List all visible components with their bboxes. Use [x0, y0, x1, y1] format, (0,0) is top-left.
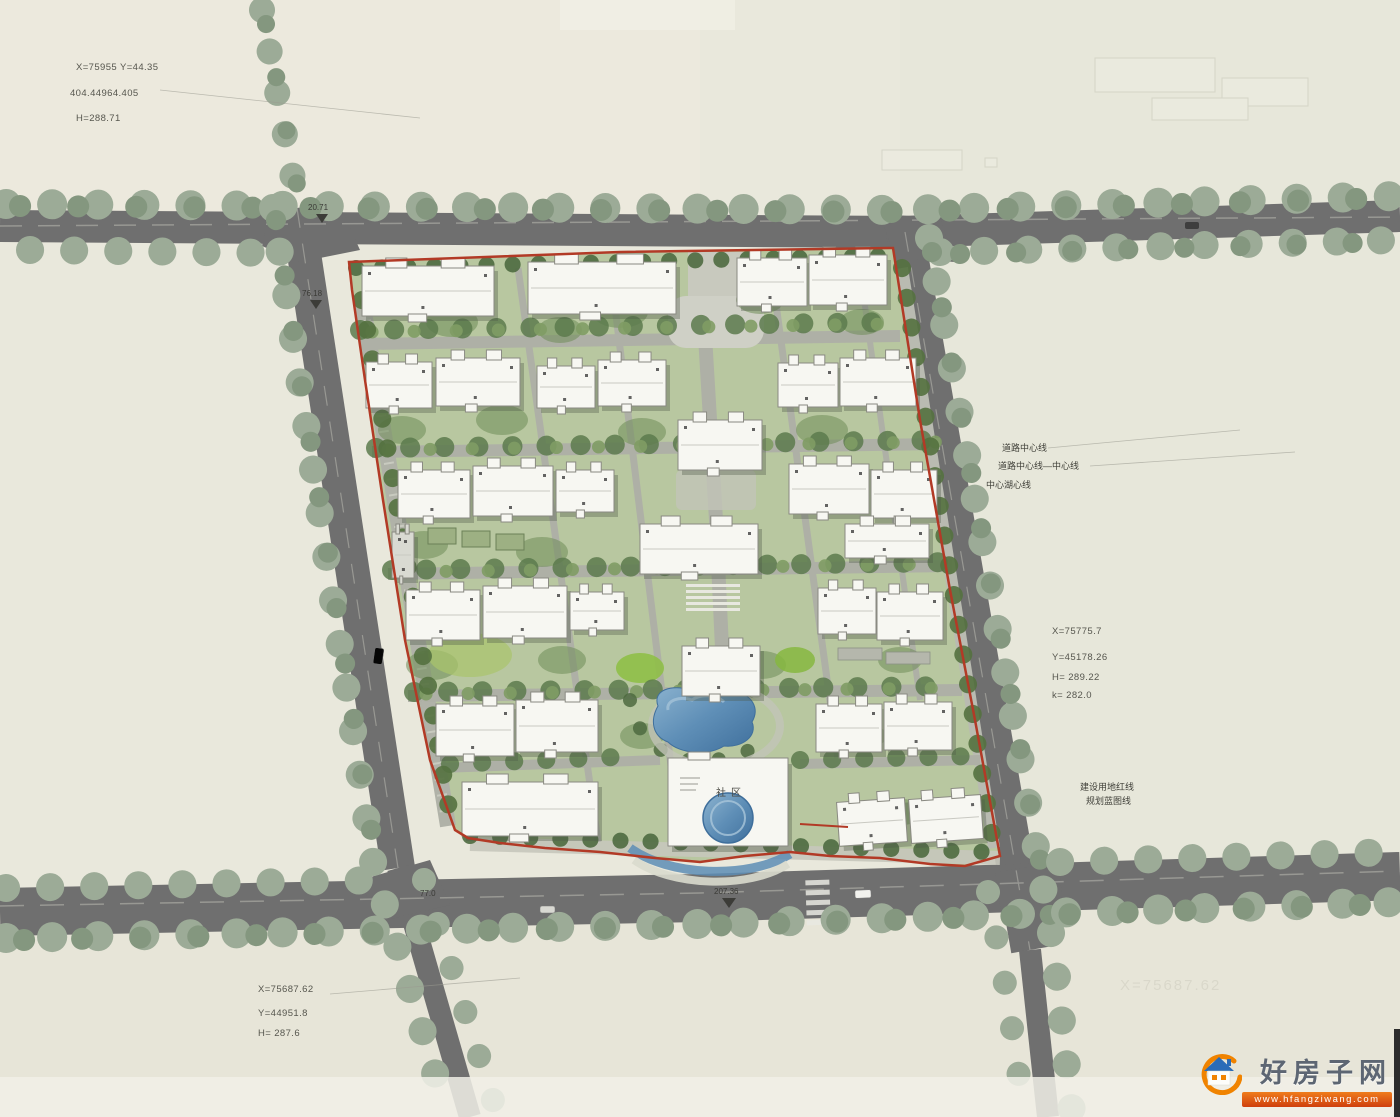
car	[855, 890, 871, 899]
building	[366, 354, 436, 414]
building	[598, 352, 670, 412]
watermark-url: www.hfangziwang.com	[1242, 1092, 1392, 1107]
redline-label-1: 建设用地红线	[1080, 781, 1134, 792]
ghost-survey-text: X=75687.62	[1120, 977, 1221, 994]
building	[537, 358, 599, 414]
dimension-label: 20.71	[308, 203, 329, 212]
survey-line: H=288.71	[76, 113, 121, 124]
building	[436, 350, 524, 412]
building	[483, 578, 571, 644]
dimension-label: 77.0	[420, 889, 436, 898]
centerline-label-3: 中心湖心线	[986, 479, 1031, 490]
photo-edge-bar	[1394, 1029, 1400, 1117]
survey-line: X=75955 Y=44.35	[76, 62, 158, 73]
survey-line: Y=45178.26	[1052, 652, 1108, 663]
survey-line: 404.44964.405	[70, 88, 139, 99]
building	[398, 462, 474, 524]
building	[884, 694, 956, 756]
survey-line: H= 289.22	[1052, 672, 1100, 683]
car	[1185, 222, 1199, 229]
centerline-label-1: 道路中心线	[1002, 442, 1047, 453]
dimension-label: 207.36	[714, 887, 739, 896]
building	[737, 250, 811, 312]
building	[516, 692, 602, 758]
building	[640, 516, 762, 580]
car	[373, 648, 384, 665]
building	[816, 696, 886, 758]
redline-label-2: 规划蓝图线	[1086, 795, 1131, 806]
building	[809, 247, 891, 311]
building	[840, 350, 920, 412]
photo-bottom-strip	[0, 1077, 1400, 1117]
building	[436, 696, 518, 762]
bright-lawn	[775, 647, 815, 673]
building	[406, 582, 484, 646]
survey-line: X=75775.7	[1052, 626, 1102, 637]
watermark: 好房子网 www.hfangziwang.com	[1196, 1051, 1392, 1111]
building	[818, 580, 880, 640]
building	[462, 774, 602, 842]
building	[362, 258, 498, 322]
building	[678, 412, 766, 476]
site-plan-image: 社区 X=75955 Y=44.35 404.44964.405 H=288.7…	[0, 0, 1400, 1117]
site-plan-canvas: 社区 X=75955 Y=44.35 404.44964.405 H=288.7…	[0, 0, 1400, 1117]
building	[556, 462, 618, 518]
watermark-site-name: 好房子网	[1260, 1051, 1392, 1090]
building	[473, 458, 557, 522]
building	[877, 584, 947, 646]
dimension-label: 76.18	[302, 289, 323, 298]
survey-line: Y=44951.8	[258, 1008, 308, 1019]
car	[540, 906, 555, 913]
building	[528, 254, 680, 320]
survey-line: k= 282.0	[1052, 690, 1092, 701]
building	[682, 638, 764, 702]
club-label: 社区	[716, 786, 746, 799]
centerline-label-2: 道路中心线—中心线	[998, 460, 1079, 471]
building	[778, 355, 842, 413]
building	[871, 462, 941, 524]
building	[789, 456, 873, 520]
watermark-house-logo	[1196, 1051, 1242, 1095]
bright-lawn	[616, 653, 664, 683]
survey-line: H= 287.6	[258, 1028, 300, 1039]
survey-line: X=75687.62	[258, 984, 314, 995]
building	[570, 584, 628, 636]
